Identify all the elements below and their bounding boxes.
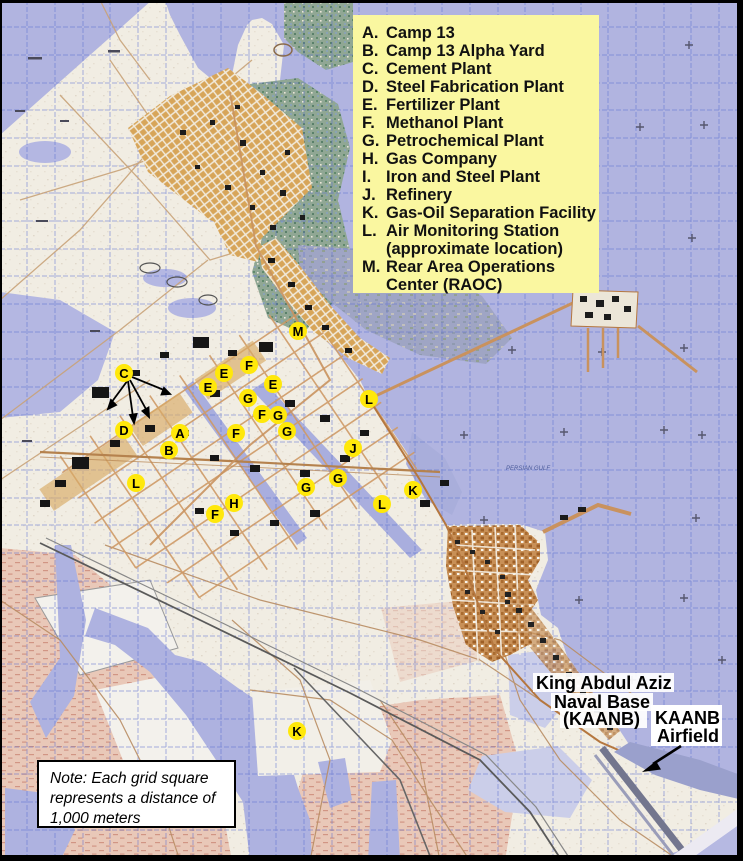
svg-text:E: E — [204, 380, 213, 395]
svg-text:King Abdul Aziz: King Abdul Aziz — [536, 673, 672, 693]
svg-text:M: M — [293, 324, 304, 339]
svg-text:M.: M. — [362, 258, 380, 276]
svg-text:Fertilizer Plant: Fertilizer Plant — [386, 96, 500, 114]
svg-text:Petrochemical Plant: Petrochemical Plant — [386, 132, 544, 150]
svg-text:G: G — [301, 480, 311, 495]
svg-text:KAANB: KAANB — [655, 708, 720, 728]
svg-text:(approximate location): (approximate location) — [386, 240, 563, 258]
svg-text:A.: A. — [362, 24, 379, 42]
svg-text:L: L — [378, 497, 386, 512]
svg-text:H: H — [229, 496, 238, 511]
svg-text:Methanol Plant: Methanol Plant — [386, 114, 504, 132]
svg-text:Camp 13: Camp 13 — [386, 24, 455, 42]
svg-text:G.: G. — [362, 132, 379, 150]
svg-text:C: C — [119, 366, 129, 381]
svg-text:L: L — [132, 476, 140, 491]
svg-text:E: E — [220, 366, 229, 381]
svg-text:I.: I. — [362, 168, 371, 186]
svg-text:G: G — [282, 424, 292, 439]
svg-text:E.: E. — [362, 96, 378, 114]
svg-text:D: D — [119, 423, 128, 438]
svg-text:B.: B. — [362, 42, 379, 60]
svg-text:Camp 13 Alpha Yard: Camp 13 Alpha Yard — [386, 42, 545, 60]
svg-text:F: F — [232, 426, 240, 441]
svg-text:E: E — [269, 377, 278, 392]
svg-text:G: G — [273, 408, 283, 423]
svg-text:D.: D. — [362, 78, 379, 96]
svg-text:Steel Fabrication Plant: Steel Fabrication Plant — [386, 78, 564, 96]
svg-text:K: K — [292, 724, 302, 739]
svg-text:F: F — [211, 507, 219, 522]
svg-text:F: F — [258, 407, 266, 422]
svg-text:Air Monitoring Station: Air Monitoring Station — [386, 222, 559, 240]
svg-text:represents a distance of: represents a distance of — [50, 790, 217, 807]
svg-text:Airfield: Airfield — [657, 726, 719, 746]
svg-text:Cement Plant: Cement Plant — [386, 60, 492, 78]
svg-text:L.: L. — [362, 222, 377, 240]
svg-text:J.: J. — [362, 186, 376, 204]
svg-text:Center (RAOC): Center (RAOC) — [386, 276, 502, 294]
svg-text:A: A — [175, 426, 185, 441]
svg-text:1,000 meters: 1,000 meters — [50, 810, 141, 827]
svg-text:K.: K. — [362, 204, 379, 222]
svg-text:Gas Company: Gas Company — [386, 150, 498, 168]
svg-text:Iron and Steel Plant: Iron and Steel Plant — [386, 168, 541, 186]
svg-text:Note: Each grid square: Note: Each grid square — [50, 770, 209, 787]
svg-text:B: B — [164, 443, 173, 458]
svg-text:Rear Area Operations: Rear Area Operations — [386, 258, 555, 276]
svg-text:Gas-Oil Separation Facility: Gas-Oil Separation Facility — [386, 204, 597, 222]
svg-text:F: F — [245, 358, 253, 373]
svg-text:J: J — [349, 441, 356, 456]
svg-text:Refinery: Refinery — [386, 186, 453, 204]
svg-text:G: G — [243, 391, 253, 406]
svg-text:C.: C. — [362, 60, 379, 78]
svg-text:F.: F. — [362, 114, 375, 132]
svg-text:(KAANB): (KAANB) — [563, 709, 640, 729]
svg-text:H.: H. — [362, 150, 379, 168]
svg-text:L: L — [365, 392, 373, 407]
svg-text:K: K — [408, 483, 418, 498]
svg-text:PERSIAN GULF: PERSIAN GULF — [506, 466, 550, 472]
svg-text:G: G — [333, 471, 343, 486]
